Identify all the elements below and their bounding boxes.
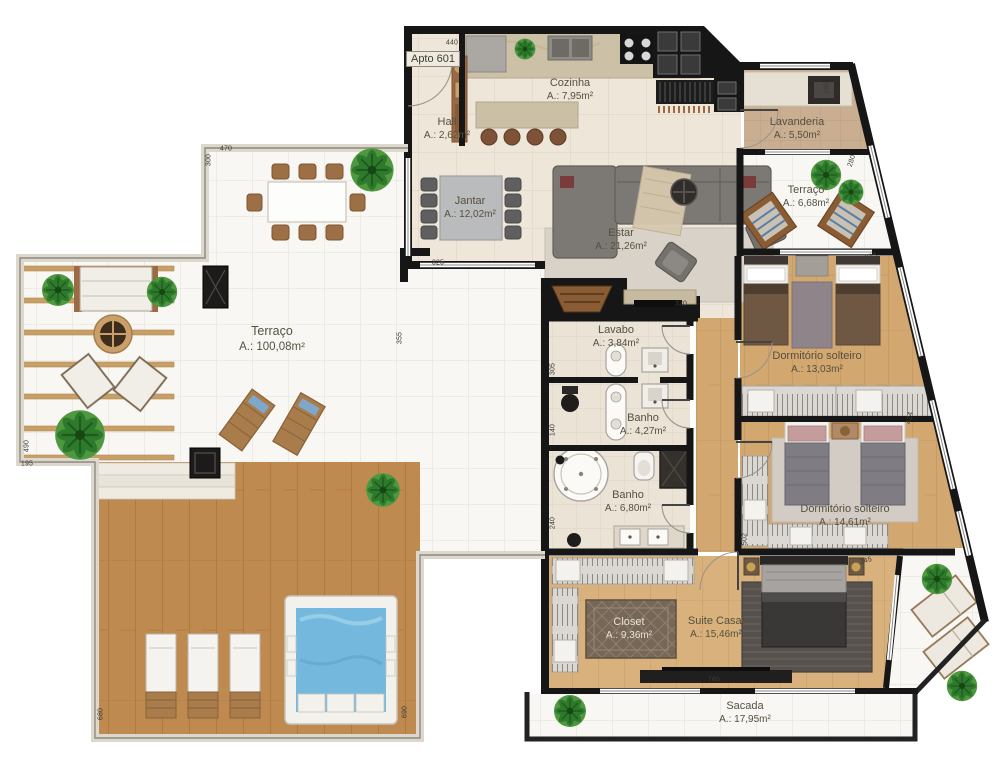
plant xyxy=(922,564,952,594)
toilet-tank xyxy=(562,386,578,394)
closet-rug xyxy=(586,600,676,658)
kitchen-sink xyxy=(548,36,592,60)
laundry xyxy=(744,72,852,106)
deck-lounger xyxy=(188,634,218,718)
stool xyxy=(504,129,520,145)
outdoor-dining-table xyxy=(268,182,346,222)
single-bed xyxy=(744,256,788,345)
floor-plan-canvas xyxy=(0,0,1000,762)
kitchen-island xyxy=(476,102,578,145)
wardrobe xyxy=(768,524,888,548)
wardrobe xyxy=(742,456,768,546)
unit-label: Apto 601 xyxy=(406,51,460,67)
toilet xyxy=(561,394,579,412)
tv-console xyxy=(640,670,792,683)
nightstand xyxy=(796,256,828,276)
floor-plan: Apto 601 Cozinha A.: 7,95m² Hall A.: 2,6… xyxy=(0,0,1000,762)
dining-table xyxy=(440,176,502,240)
single-bed xyxy=(785,421,829,505)
tv xyxy=(662,667,770,671)
stool xyxy=(527,129,543,145)
stool xyxy=(481,129,497,145)
plant xyxy=(947,671,977,701)
plant xyxy=(42,274,74,306)
plant xyxy=(515,39,536,60)
plant xyxy=(147,277,177,307)
wardrobe xyxy=(742,386,932,416)
tv xyxy=(634,300,682,307)
plant xyxy=(55,410,105,460)
fridge xyxy=(466,36,506,72)
cooktop xyxy=(620,34,656,64)
pool xyxy=(285,596,397,724)
single-bed xyxy=(836,256,880,345)
rug xyxy=(792,282,832,348)
coffee-table xyxy=(671,179,697,205)
stool xyxy=(550,129,566,145)
plant xyxy=(350,148,393,191)
single-bed xyxy=(861,421,905,505)
plant xyxy=(554,695,586,727)
plant xyxy=(839,180,864,205)
deck-lounger xyxy=(146,634,176,718)
plant xyxy=(811,160,841,190)
double-bed xyxy=(760,556,848,647)
deck-lounger xyxy=(230,634,260,718)
plant xyxy=(366,473,400,507)
pergola-daybed xyxy=(74,266,158,312)
pergola-round-table xyxy=(94,315,132,353)
